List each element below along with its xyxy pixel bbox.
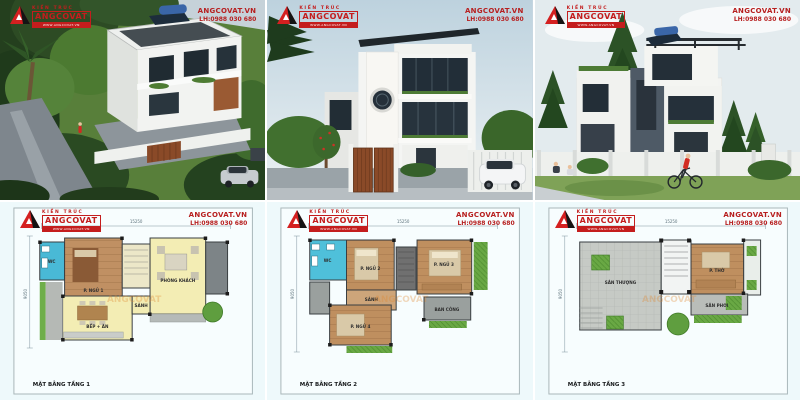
staircase: [122, 244, 150, 288]
living-label: PHÒNG KHÁCH: [160, 278, 195, 283]
window: [636, 80, 656, 130]
bedroom1-label: P. NGỦ 1: [83, 288, 103, 293]
window: [330, 100, 352, 130]
render-panel-aerial: KIẾN TRÚC ANGCOVAT WWW.ANGCOVAT.VN ANGCO…: [0, 0, 265, 200]
dark-car: [250, 148, 265, 161]
parapet-plants: [578, 66, 628, 71]
angcovat-logo: KIẾN TRÚC ANGCOVAT WWW.ANGCOVAT.VN: [545, 6, 626, 28]
logo-tagline: WWW.ANGCOVAT.VN: [567, 23, 626, 28]
watermark-text: ANGCOVAT: [107, 295, 162, 305]
angcovat-logo: KIẾN TRÚC ANGCOVAT WWW.ANGCOVAT.VN: [287, 210, 368, 232]
website-text: ANGCOVAT.VN: [465, 7, 524, 16]
balcony-planting: [429, 321, 467, 328]
logo-brand-name: ANGCOVAT: [567, 11, 626, 22]
window: [149, 55, 174, 83]
hotline-text: LH:0988 030 680: [189, 220, 248, 228]
hotline-text: LH:0988 030 680: [723, 220, 782, 228]
contact-info: ANGCOVAT.VN LH:0988 030 680: [198, 7, 257, 23]
logo-triangle-icon: [287, 210, 307, 228]
bush: [747, 160, 791, 180]
entry-steps: [150, 314, 206, 322]
floorplan-panel-2: 15250 9050: [267, 202, 532, 400]
dim-height-label: 9050: [290, 288, 295, 299]
angcovat-villa-montage: KIẾN TRÚC ANGCOVAT WWW.ANGCOVAT.VN ANGCO…: [0, 0, 800, 400]
hotline-text: LH:0988 030 680: [732, 16, 791, 24]
logo-brand-name: ANGCOVAT: [42, 215, 101, 226]
angcovat-logo: KIẾN TRÚC ANGCOVAT WWW.ANGCOVAT.VN: [10, 6, 91, 28]
contact-info: ANGCOVAT.VN LH:0988 030 680: [456, 211, 515, 227]
glass-wall-middle: [402, 102, 468, 138]
balcony-plants: [149, 83, 169, 89]
logo-brand-name: ANGCOVAT: [309, 215, 368, 226]
bedroom4-label: P. NGỦ 4: [351, 324, 371, 329]
dim-height-label: 9050: [23, 288, 28, 299]
floorplan-panel-3: 15250 9050: [535, 202, 800, 400]
bush: [576, 158, 608, 174]
dim-width-label: 15250: [397, 219, 410, 224]
side-path: [46, 282, 63, 340]
logo-triangle-icon: [20, 210, 40, 228]
window: [674, 132, 708, 152]
logo-tagline: WWW.ANGCOVAT.VN: [32, 23, 91, 28]
front-render-scene: [267, 0, 532, 200]
angcovat-logo: KIẾN TRÚC ANGCOVAT WWW.ANGCOVAT.VN: [277, 6, 358, 28]
gate-pillar: [349, 144, 354, 192]
logo-brand-name: ANGCOVAT: [32, 11, 91, 22]
floor-slab: [399, 138, 473, 143]
bedroom3-label: P. NGỦ 3: [434, 262, 454, 267]
balcony-planting: [347, 346, 393, 353]
logo-triangle-icon: [277, 6, 297, 24]
window: [149, 92, 179, 116]
website-text: ANGCOVAT.VN: [198, 7, 257, 16]
logo-tagline: WWW.ANGCOVAT.VN: [309, 227, 368, 232]
balcony-label: BAN CÔNG: [435, 307, 460, 312]
glass-wall: [652, 54, 692, 80]
bush: [400, 163, 436, 177]
wood-cladding: [214, 77, 239, 111]
dim-width-label: 15250: [130, 219, 143, 224]
logo-triangle-icon: [555, 210, 575, 228]
hotline-text: LH:0988 030 680: [198, 16, 257, 24]
circular-window: [372, 89, 394, 111]
gate-pillar: [394, 144, 399, 192]
balcony-plants: [668, 120, 714, 124]
logo-tagline: WWW.ANGCOVAT.VN: [42, 227, 101, 232]
website-text: ANGCOVAT.VN: [189, 211, 248, 220]
hotline-text: LH:0988 030 680: [465, 16, 524, 24]
floorplan-panel-1: 15250 9050: [0, 202, 265, 400]
contact-info: ANGCOVAT.VN LH:0988 030 680: [465, 7, 524, 23]
logo-brand-name: ANGCOVAT: [299, 11, 358, 22]
floor-slab: [399, 94, 473, 99]
bedroom2-label: P. NGỦ 2: [361, 266, 381, 271]
lawn-patch: [564, 180, 663, 196]
rear-planting: [694, 315, 742, 323]
worship-label: P. THỜ: [709, 268, 725, 273]
render-panel-front: KIẾN TRÚC ANGCOVAT WWW.ANGCOVAT.VN ANGCO…: [267, 0, 532, 200]
logo-tagline: WWW.ANGCOVAT.VN: [299, 23, 358, 28]
logo-tagline: WWW.ANGCOVAT.VN: [577, 227, 636, 232]
carport: [206, 242, 228, 294]
stair-core: [661, 240, 691, 294]
left-balcony: [310, 282, 330, 314]
website-text: ANGCOVAT.VN: [723, 211, 782, 220]
staircase: [397, 247, 417, 290]
window: [217, 45, 237, 71]
watermark-text: ANGCOVAT: [374, 295, 429, 305]
angcovat-logo: KIẾN TRÚC ANGCOVAT WWW.ANGCOVAT.VN: [555, 210, 636, 232]
balcony-plants: [192, 77, 216, 83]
aerial-render-scene: [0, 0, 265, 200]
contact-info: ANGCOVAT.VN LH:0988 030 680: [723, 211, 782, 227]
website-text: ANGCOVAT.VN: [456, 211, 515, 220]
planting-strip: [40, 282, 46, 340]
website-text: ANGCOVAT.VN: [732, 7, 791, 16]
side-render-scene: [535, 0, 800, 200]
logo-triangle-icon: [545, 6, 565, 24]
contact-info: ANGCOVAT.VN LH:0988 030 680: [189, 211, 248, 227]
hotline-text: LH:0988 030 680: [456, 220, 515, 228]
contact-info: ANGCOVAT.VN LH:0988 030 680: [732, 7, 791, 23]
window: [184, 49, 209, 77]
parapet: [395, 44, 473, 54]
glass-wall-upper: [402, 58, 468, 94]
dim-height-label: 9050: [558, 288, 563, 299]
window: [582, 84, 608, 112]
logo-triangle-icon: [10, 6, 30, 24]
round-bush: [667, 313, 689, 335]
terrace-label: SÂN THƯỢNG: [604, 280, 636, 285]
glass-wall: [668, 96, 714, 122]
wc-label: WC: [48, 259, 56, 264]
render-panel-side: KIẾN TRÚC ANGCOVAT WWW.ANGCOVAT.VN ANGCO…: [535, 0, 800, 200]
kitchen-label: BẾP + ĂN: [86, 323, 109, 329]
dim-width-label: 15250: [665, 219, 678, 224]
garden-tree: [203, 302, 223, 322]
logo-brand-name: ANGCOVAT: [577, 215, 636, 226]
angcovat-logo: KIẾN TRÚC ANGCOVAT WWW.ANGCOVAT.VN: [20, 210, 101, 232]
side-planting: [474, 242, 488, 290]
wc-label: WC: [324, 258, 332, 263]
yard-label: SÂN PHƠI: [705, 303, 728, 308]
watermark-text: ANGCOVAT: [642, 295, 697, 305]
pedestrian: [78, 122, 82, 133]
